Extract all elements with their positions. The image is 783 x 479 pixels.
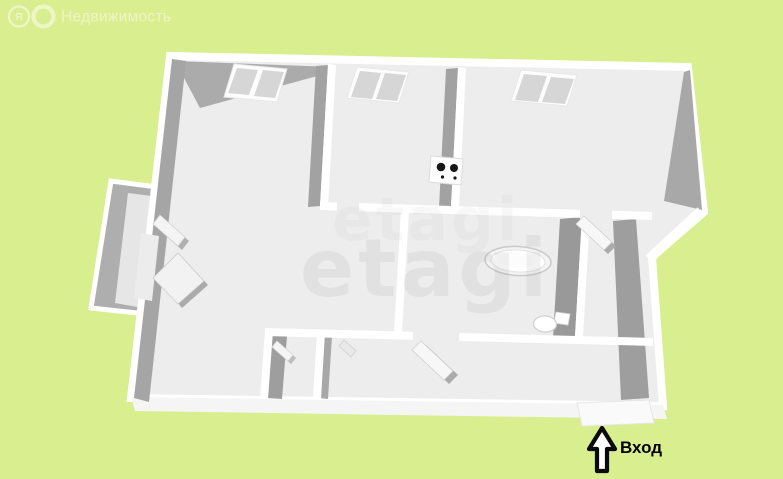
floorplan-image: etagi etagi Я Недвижимость Вход <box>0 0 783 479</box>
window-icon-1 <box>224 64 287 102</box>
screenshot-root: etagi etagi Я Недвижимость Вход <box>0 0 783 479</box>
watermark-text: etagi <box>300 222 551 315</box>
stove-icon <box>429 156 463 185</box>
entrance-threshold <box>577 400 654 426</box>
window-icon-2 <box>347 67 409 103</box>
logo-letter: Я <box>15 12 23 24</box>
window-icon-3 <box>511 70 577 106</box>
logo-text: Недвижимость <box>61 9 171 26</box>
entrance-label: Вход <box>620 438 662 457</box>
